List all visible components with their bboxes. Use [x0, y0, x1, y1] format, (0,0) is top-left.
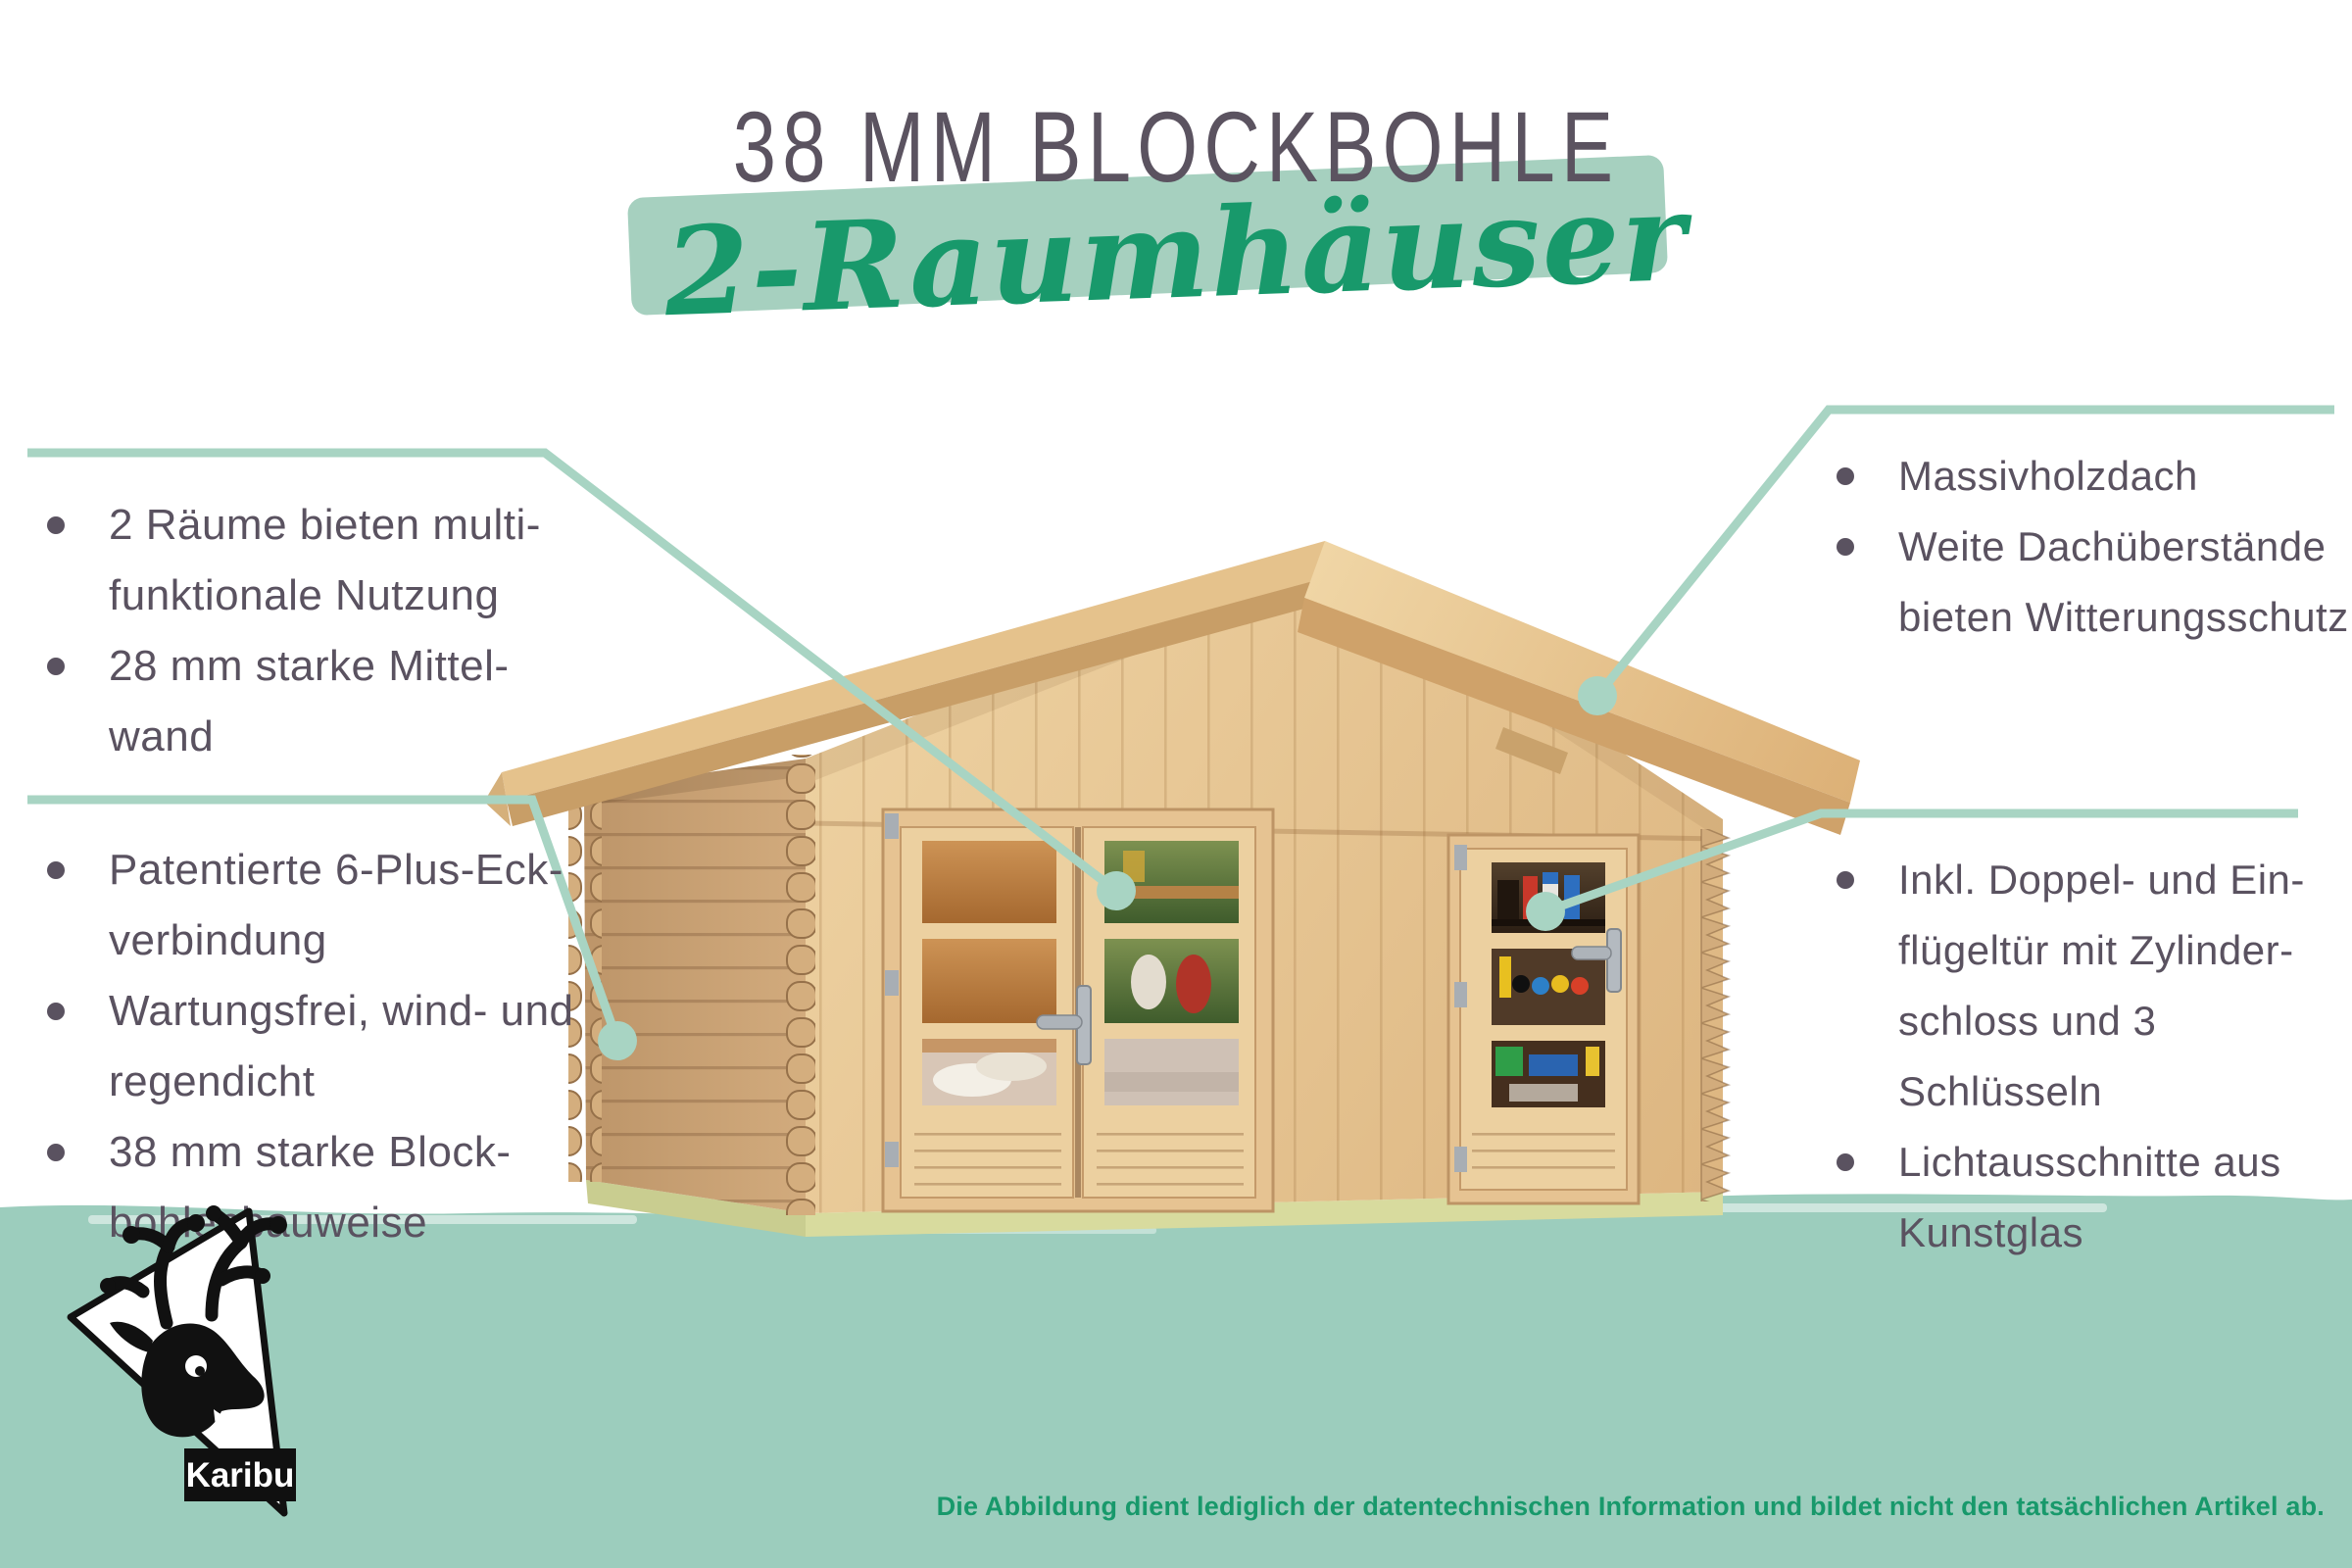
callout-text: schloss und 3: [1898, 986, 2305, 1056]
list-item: Massivholzdach: [1825, 441, 2344, 512]
callout-dot: [1097, 871, 1136, 910]
door-window: [1104, 939, 1239, 1023]
callout-text: 2 Räume bieten multi-: [109, 490, 541, 561]
hinge-icon: [1454, 845, 1467, 870]
hinge-icon: [885, 970, 899, 996]
door-window: [922, 939, 1056, 1023]
callout-text: Wartungsfrei, wind- und: [109, 976, 574, 1047]
callout-text: verbindung: [109, 906, 563, 976]
hinge-icon: [1454, 1147, 1467, 1172]
callout-bottom-left: Patentierte 6-Plus-Eck- verbindung Wartu…: [35, 835, 643, 1258]
list-item: Patentierte 6-Plus-Eck- verbindung: [35, 835, 643, 976]
karibu-logo: Karibu: [57, 1198, 304, 1539]
list-item: Weite Dachüberstände bieten Witterungssc…: [1825, 512, 2344, 653]
bullet-icon: [1837, 467, 1854, 485]
callout-bottom-right: Inkl. Doppel- und Ein- flügeltür mit Zyl…: [1825, 845, 2344, 1268]
callout-text: Massivholzdach: [1898, 441, 2198, 512]
list-item: 2 Räume bieten multi- funktionale Nutzun…: [35, 490, 643, 631]
callout-text: regendicht: [109, 1047, 574, 1117]
door-window: [922, 841, 1056, 923]
callout-text: 38 mm starke Block-: [109, 1117, 511, 1188]
bullet-icon: [1837, 871, 1854, 889]
list-item: 28 mm starke Mittel- wand: [35, 631, 643, 772]
callout-text: funktionale Nutzung: [109, 561, 541, 631]
hinge-icon: [885, 1142, 899, 1167]
callout-dot: [1526, 892, 1565, 931]
callout-dot: [1578, 676, 1617, 715]
hinge-icon: [1454, 982, 1467, 1007]
callout-top-left: 2 Räume bieten multi- funktionale Nutzun…: [35, 490, 643, 772]
bullet-icon: [47, 516, 65, 534]
callout-text: Inkl. Doppel- und Ein-: [1898, 845, 2305, 915]
double-door: [883, 809, 1273, 1211]
list-item: Inkl. Doppel- und Ein- flügeltür mit Zyl…: [1825, 845, 2344, 1127]
callout-text: wand: [109, 702, 510, 772]
callout-text: Lichtausschnitte aus: [1898, 1127, 2281, 1198]
bullet-icon: [1837, 538, 1854, 556]
bullet-icon: [47, 861, 65, 879]
callout-text: Kunstglas: [1898, 1198, 2281, 1268]
cabin: [484, 541, 1860, 1237]
callout-text: Weite Dachüberstände: [1898, 512, 2349, 582]
hinge-icon: [885, 813, 899, 839]
callout-text: Schlüsseln: [1898, 1056, 2305, 1127]
disclaimer-text: Die Abbildung dient lediglich der datent…: [937, 1492, 2325, 1522]
callout-text: 28 mm starke Mittel-: [109, 631, 510, 702]
list-item: Wartungsfrei, wind- und regendicht: [35, 976, 643, 1117]
callout-text: Patentierte 6-Plus-Eck-: [109, 835, 563, 906]
bullet-icon: [47, 1144, 65, 1161]
bullet-icon: [47, 658, 65, 675]
callout-text: bieten Witterungsschutz: [1898, 582, 2349, 653]
callout-top-right: Massivholzdach Weite Dachüberstände biet…: [1825, 441, 2344, 653]
logo-wordmark: Karibu: [186, 1456, 295, 1494]
bullet-icon: [1837, 1153, 1854, 1171]
list-item: Lichtausschnitte aus Kunstglas: [1825, 1127, 2344, 1268]
bullet-icon: [47, 1003, 65, 1020]
callout-text: flügeltür mit Zylinder-: [1898, 915, 2305, 986]
